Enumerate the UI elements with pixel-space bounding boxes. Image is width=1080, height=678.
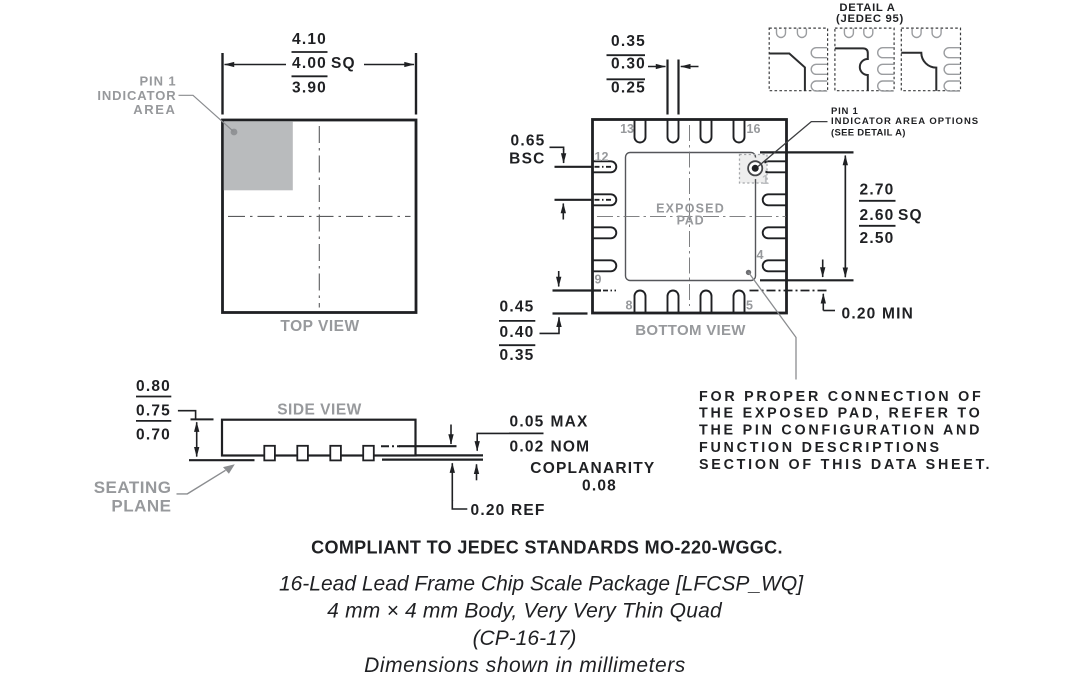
svg-text:INDICATOR: INDICATOR [97, 88, 176, 103]
svg-text:NOM: NOM [551, 439, 591, 456]
svg-text:BSC: BSC [509, 151, 545, 168]
svg-text:MAX: MAX [551, 414, 589, 431]
svg-text:SIDE VIEW: SIDE VIEW [277, 402, 362, 419]
svg-text:COMPLIANT TO JEDEC STANDARDS M: COMPLIANT TO JEDEC STANDARDS MO-220-WGGC… [311, 538, 783, 558]
svg-text:16: 16 [747, 122, 761, 136]
svg-text:0.45: 0.45 [500, 298, 535, 315]
svg-text:16-Lead Lead Frame Chip Scale: 16-Lead Lead Frame Chip Scale Package [L… [279, 573, 804, 596]
svg-text:4 mm × 4 mm Body, Very Very Th: 4 mm × 4 mm Body, Very Very Thin Quad [327, 600, 723, 623]
svg-text:1: 1 [762, 173, 769, 187]
svg-text:0.40: 0.40 [500, 324, 535, 341]
svg-text:4.00: 4.00 [292, 55, 327, 72]
svg-text:0.20 MIN: 0.20 MIN [842, 305, 915, 322]
svg-text:0.30: 0.30 [611, 56, 646, 73]
svg-text:THE PIN CONFIGURATION AND: THE PIN CONFIGURATION AND [699, 422, 982, 438]
svg-text:5: 5 [746, 299, 753, 313]
svg-text:12: 12 [595, 150, 609, 164]
svg-text:THE EXPOSED PAD, REFER TO: THE EXPOSED PAD, REFER TO [699, 405, 983, 421]
svg-text:(JEDEC 95): (JEDEC 95) [836, 13, 904, 25]
svg-text:PIN 1: PIN 1 [139, 74, 176, 89]
svg-text:3.90: 3.90 [292, 80, 327, 97]
svg-text:0.05: 0.05 [510, 414, 545, 431]
svg-text:COPLANARITY: COPLANARITY [530, 460, 655, 477]
svg-text:SQ: SQ [331, 55, 356, 72]
svg-text:2.70: 2.70 [860, 182, 895, 199]
svg-text:(CP-16-17): (CP-16-17) [473, 627, 577, 650]
svg-text:PAD: PAD [677, 214, 705, 228]
svg-text:SECTION OF THIS DATA SHEET.: SECTION OF THIS DATA SHEET. [699, 457, 992, 473]
svg-text:4.10: 4.10 [292, 31, 327, 48]
svg-text:2.50: 2.50 [860, 230, 895, 247]
svg-text:0.25: 0.25 [611, 80, 646, 97]
svg-text:0.75: 0.75 [136, 403, 171, 420]
svg-text:(SEE DETAIL A): (SEE DETAIL A) [831, 128, 906, 139]
svg-text:0.08: 0.08 [582, 478, 617, 495]
svg-text:INDICATOR AREA OPTIONS: INDICATOR AREA OPTIONS [831, 116, 979, 127]
svg-text:8: 8 [626, 299, 633, 313]
svg-text:0.20 REF: 0.20 REF [471, 502, 546, 519]
svg-text:4: 4 [757, 248, 764, 262]
svg-text:2.60: 2.60 [860, 207, 895, 224]
svg-text:13: 13 [620, 122, 634, 136]
svg-text:Dimensions shown in millimeter: Dimensions shown in millimeters [364, 654, 686, 677]
svg-text:SEATING: SEATING [94, 478, 172, 497]
svg-text:0.65: 0.65 [511, 132, 546, 149]
svg-text:0.35: 0.35 [611, 33, 646, 50]
svg-text:FOR PROPER CONNECTION OF: FOR PROPER CONNECTION OF [699, 389, 983, 405]
svg-text:0.35: 0.35 [500, 347, 535, 364]
svg-text:0.70: 0.70 [136, 427, 171, 444]
svg-text:TOP VIEW: TOP VIEW [280, 318, 359, 335]
svg-text:PLANE: PLANE [111, 497, 171, 516]
svg-text:9: 9 [595, 273, 602, 287]
svg-text:SQ: SQ [898, 207, 923, 224]
svg-text:0.02: 0.02 [510, 439, 545, 456]
svg-text:DETAIL A: DETAIL A [839, 2, 895, 14]
svg-text:BOTTOM VIEW: BOTTOM VIEW [635, 322, 746, 339]
svg-text:0.80: 0.80 [136, 378, 171, 395]
svg-text:FUNCTION DESCRIPTIONS: FUNCTION DESCRIPTIONS [699, 440, 942, 456]
svg-text:AREA: AREA [133, 102, 176, 117]
